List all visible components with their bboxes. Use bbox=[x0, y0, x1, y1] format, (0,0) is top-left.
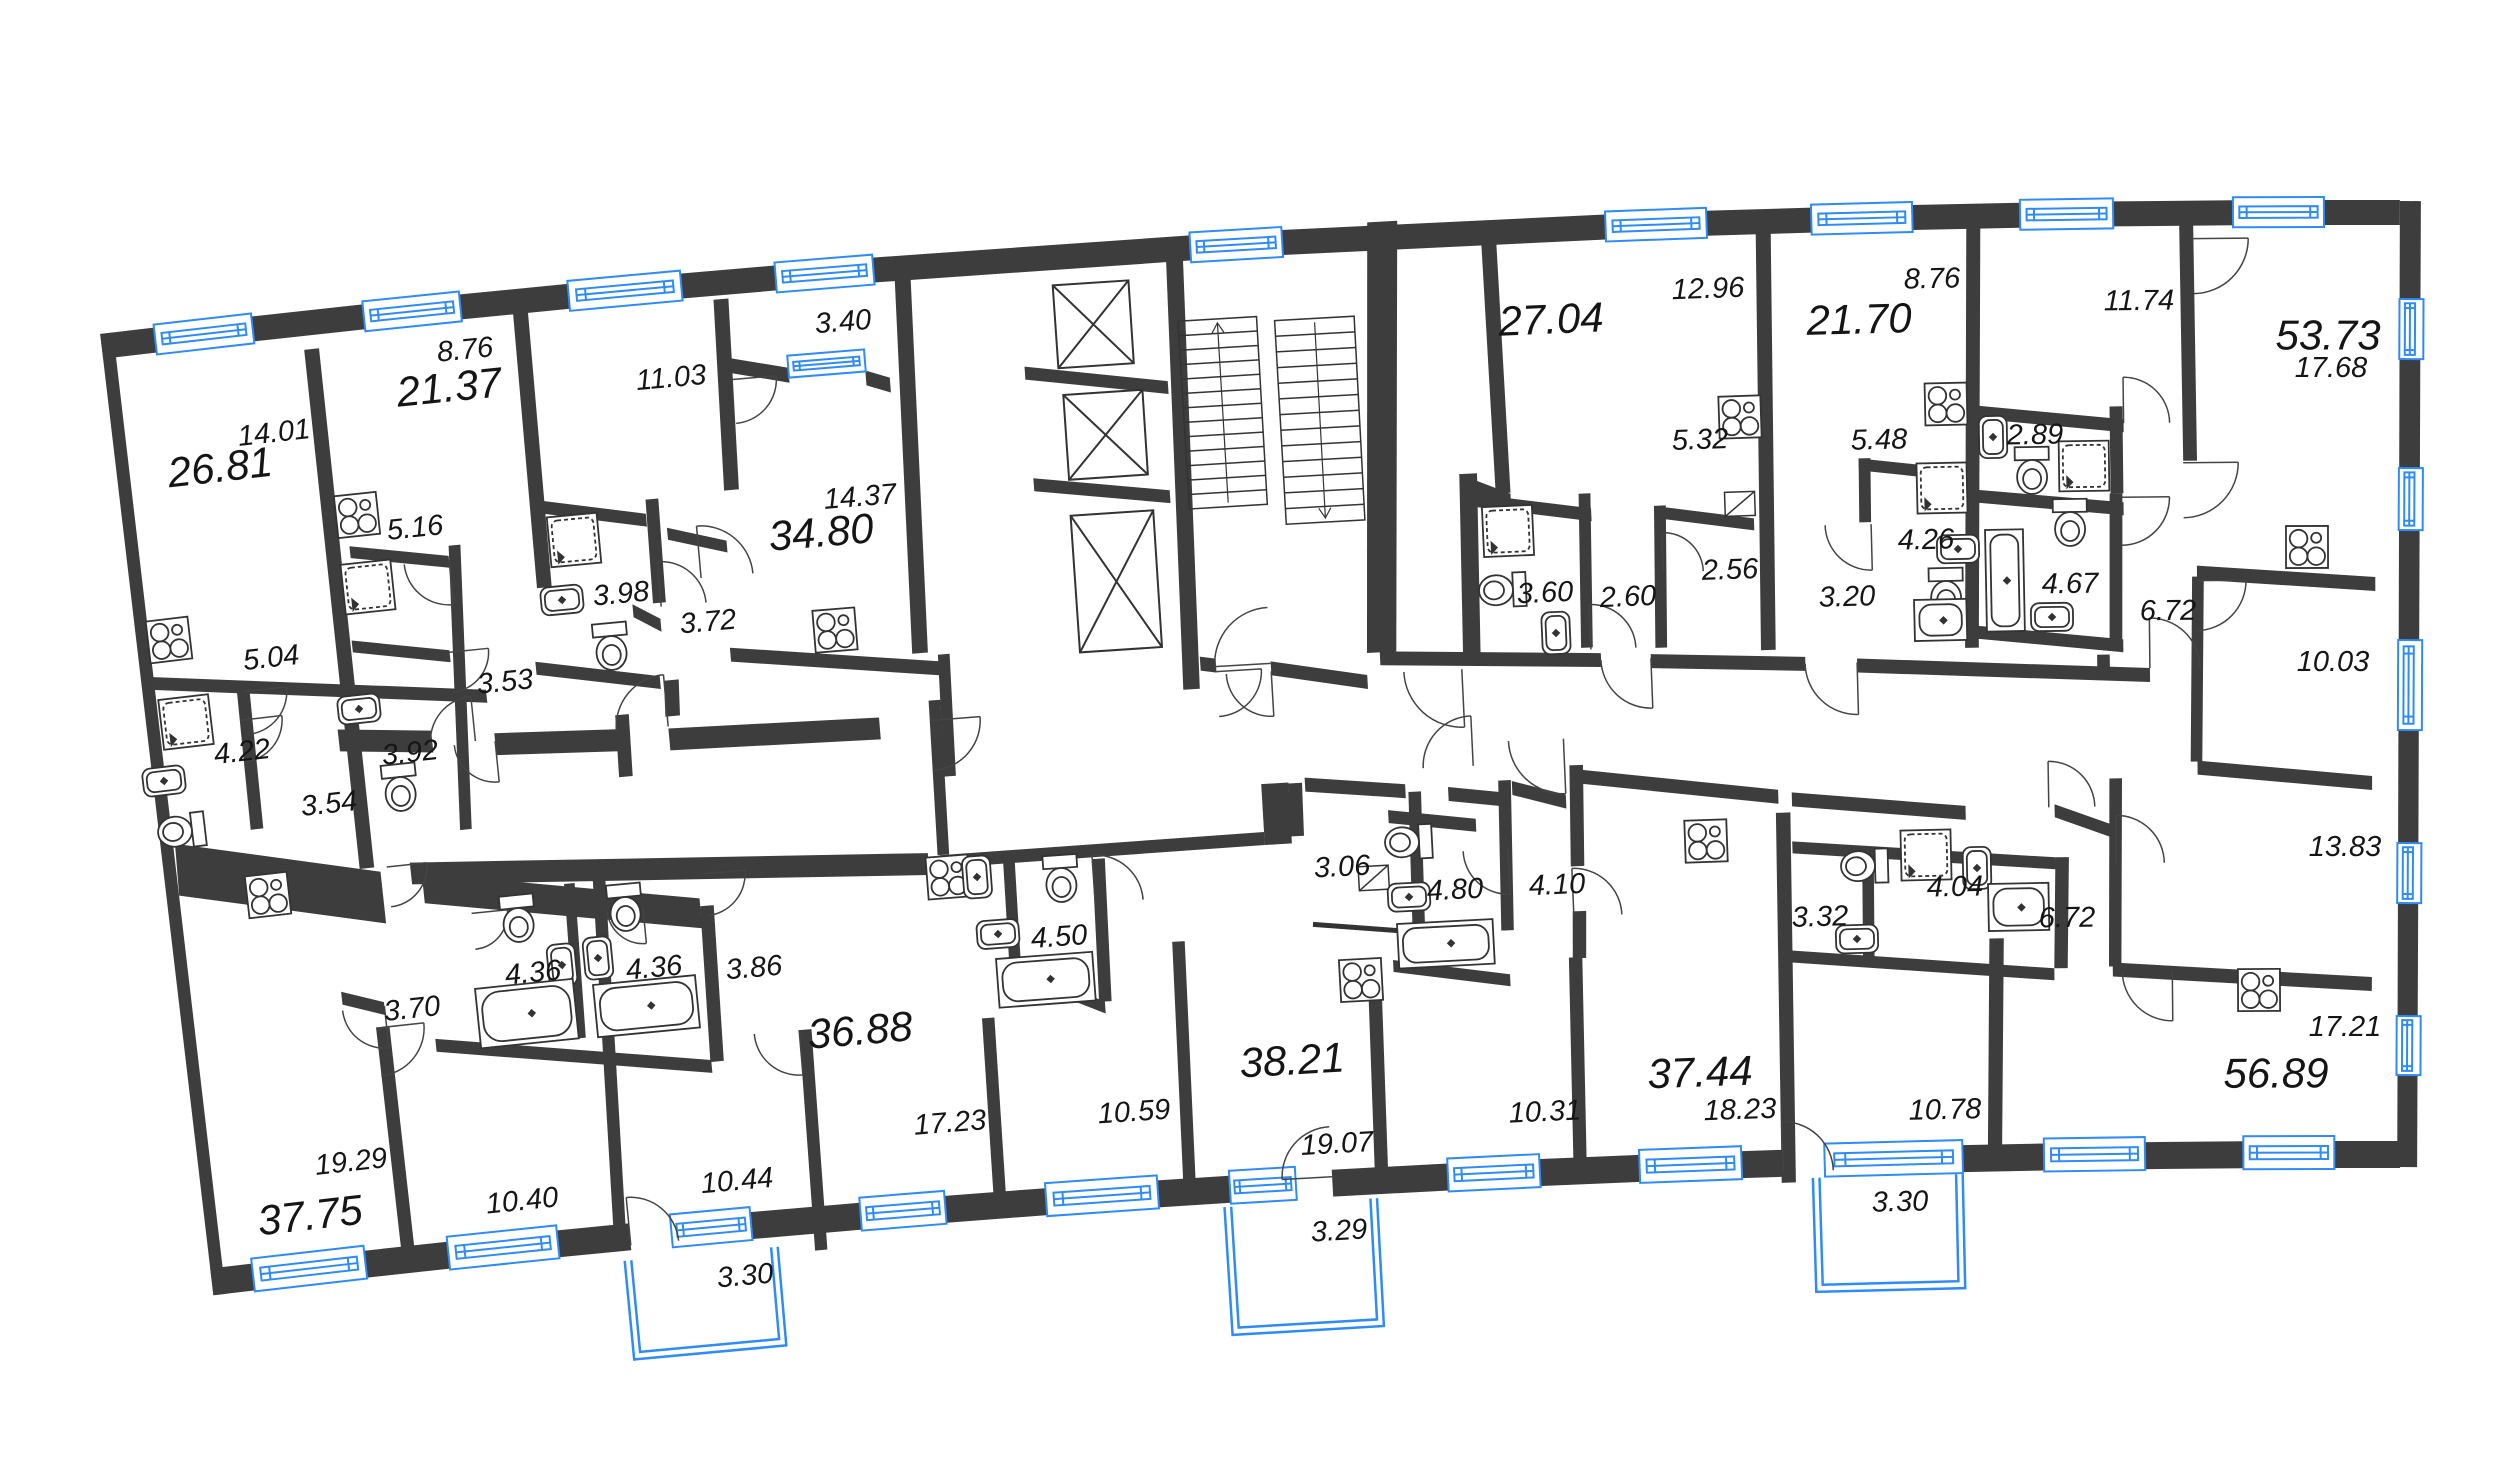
svg-text:3.54: 3.54 bbox=[299, 785, 359, 823]
svg-text:5.04: 5.04 bbox=[241, 639, 301, 677]
svg-text:19.07: 19.07 bbox=[1300, 1126, 1376, 1162]
svg-text:27.04: 27.04 bbox=[1496, 293, 1604, 344]
svg-text:3.92: 3.92 bbox=[380, 734, 440, 772]
svg-text:5.48: 5.48 bbox=[1850, 423, 1907, 456]
svg-text:3.60: 3.60 bbox=[1516, 576, 1574, 610]
svg-text:4.36: 4.36 bbox=[503, 954, 563, 992]
svg-text:4.67: 4.67 bbox=[2042, 568, 2101, 601]
svg-text:37.44: 37.44 bbox=[1647, 1047, 1754, 1098]
svg-text:11.74: 11.74 bbox=[2104, 285, 2175, 318]
svg-text:3.53: 3.53 bbox=[475, 663, 534, 700]
svg-text:4.50: 4.50 bbox=[1030, 919, 1089, 955]
svg-text:17.23: 17.23 bbox=[913, 1104, 988, 1142]
svg-text:56.89: 56.89 bbox=[2223, 1049, 2328, 1096]
svg-text:3.72: 3.72 bbox=[678, 604, 737, 641]
svg-text:3.30: 3.30 bbox=[1871, 1185, 1928, 1218]
svg-text:2.56: 2.56 bbox=[1700, 553, 1759, 587]
svg-text:12.96: 12.96 bbox=[1671, 272, 1745, 306]
svg-text:4.10: 4.10 bbox=[1528, 868, 1586, 902]
svg-text:10.44: 10.44 bbox=[699, 1162, 774, 1200]
svg-text:10.78: 10.78 bbox=[1908, 1093, 1981, 1127]
svg-text:6.72: 6.72 bbox=[2039, 902, 2096, 935]
svg-text:17.21: 17.21 bbox=[2309, 1011, 2382, 1043]
svg-text:10.03: 10.03 bbox=[2297, 646, 2370, 678]
svg-text:3.86: 3.86 bbox=[724, 950, 784, 987]
svg-text:5.32: 5.32 bbox=[1671, 423, 1729, 457]
svg-text:3.30: 3.30 bbox=[715, 1258, 774, 1295]
svg-text:6.72: 6.72 bbox=[2140, 595, 2197, 628]
svg-text:3.29: 3.29 bbox=[1310, 1213, 1368, 1248]
svg-text:3.98: 3.98 bbox=[591, 575, 650, 612]
svg-text:11.03: 11.03 bbox=[635, 359, 708, 397]
svg-text:13.83: 13.83 bbox=[2309, 831, 2382, 863]
svg-text:8.76: 8.76 bbox=[1903, 262, 1961, 295]
svg-text:4.04: 4.04 bbox=[1926, 870, 1983, 903]
svg-text:3.06: 3.06 bbox=[1313, 849, 1372, 884]
svg-text:18.23: 18.23 bbox=[1703, 1093, 1777, 1127]
svg-text:2.89: 2.89 bbox=[2006, 419, 2064, 452]
svg-text:3.40: 3.40 bbox=[814, 304, 873, 340]
svg-text:38.21: 38.21 bbox=[1238, 1033, 1346, 1086]
svg-text:21.70: 21.70 bbox=[1805, 294, 1913, 344]
svg-text:3.70: 3.70 bbox=[382, 990, 442, 1028]
svg-text:17.68: 17.68 bbox=[2295, 352, 2368, 384]
svg-text:3.32: 3.32 bbox=[1791, 900, 1848, 934]
svg-text:10.59: 10.59 bbox=[1097, 1094, 1172, 1131]
svg-text:2.60: 2.60 bbox=[1598, 580, 1657, 614]
svg-text:10.31: 10.31 bbox=[1508, 1094, 1582, 1129]
svg-text:5.16: 5.16 bbox=[385, 509, 445, 547]
svg-text:4.36: 4.36 bbox=[624, 949, 684, 986]
svg-text:4.22: 4.22 bbox=[212, 733, 272, 771]
svg-text:4.26: 4.26 bbox=[1897, 523, 1955, 556]
svg-text:8.76: 8.76 bbox=[435, 331, 495, 369]
svg-text:36.88: 36.88 bbox=[806, 1002, 915, 1058]
svg-text:34.80: 34.80 bbox=[767, 504, 876, 560]
svg-text:4.80: 4.80 bbox=[1426, 873, 1484, 908]
svg-text:3.20: 3.20 bbox=[1818, 580, 1875, 614]
